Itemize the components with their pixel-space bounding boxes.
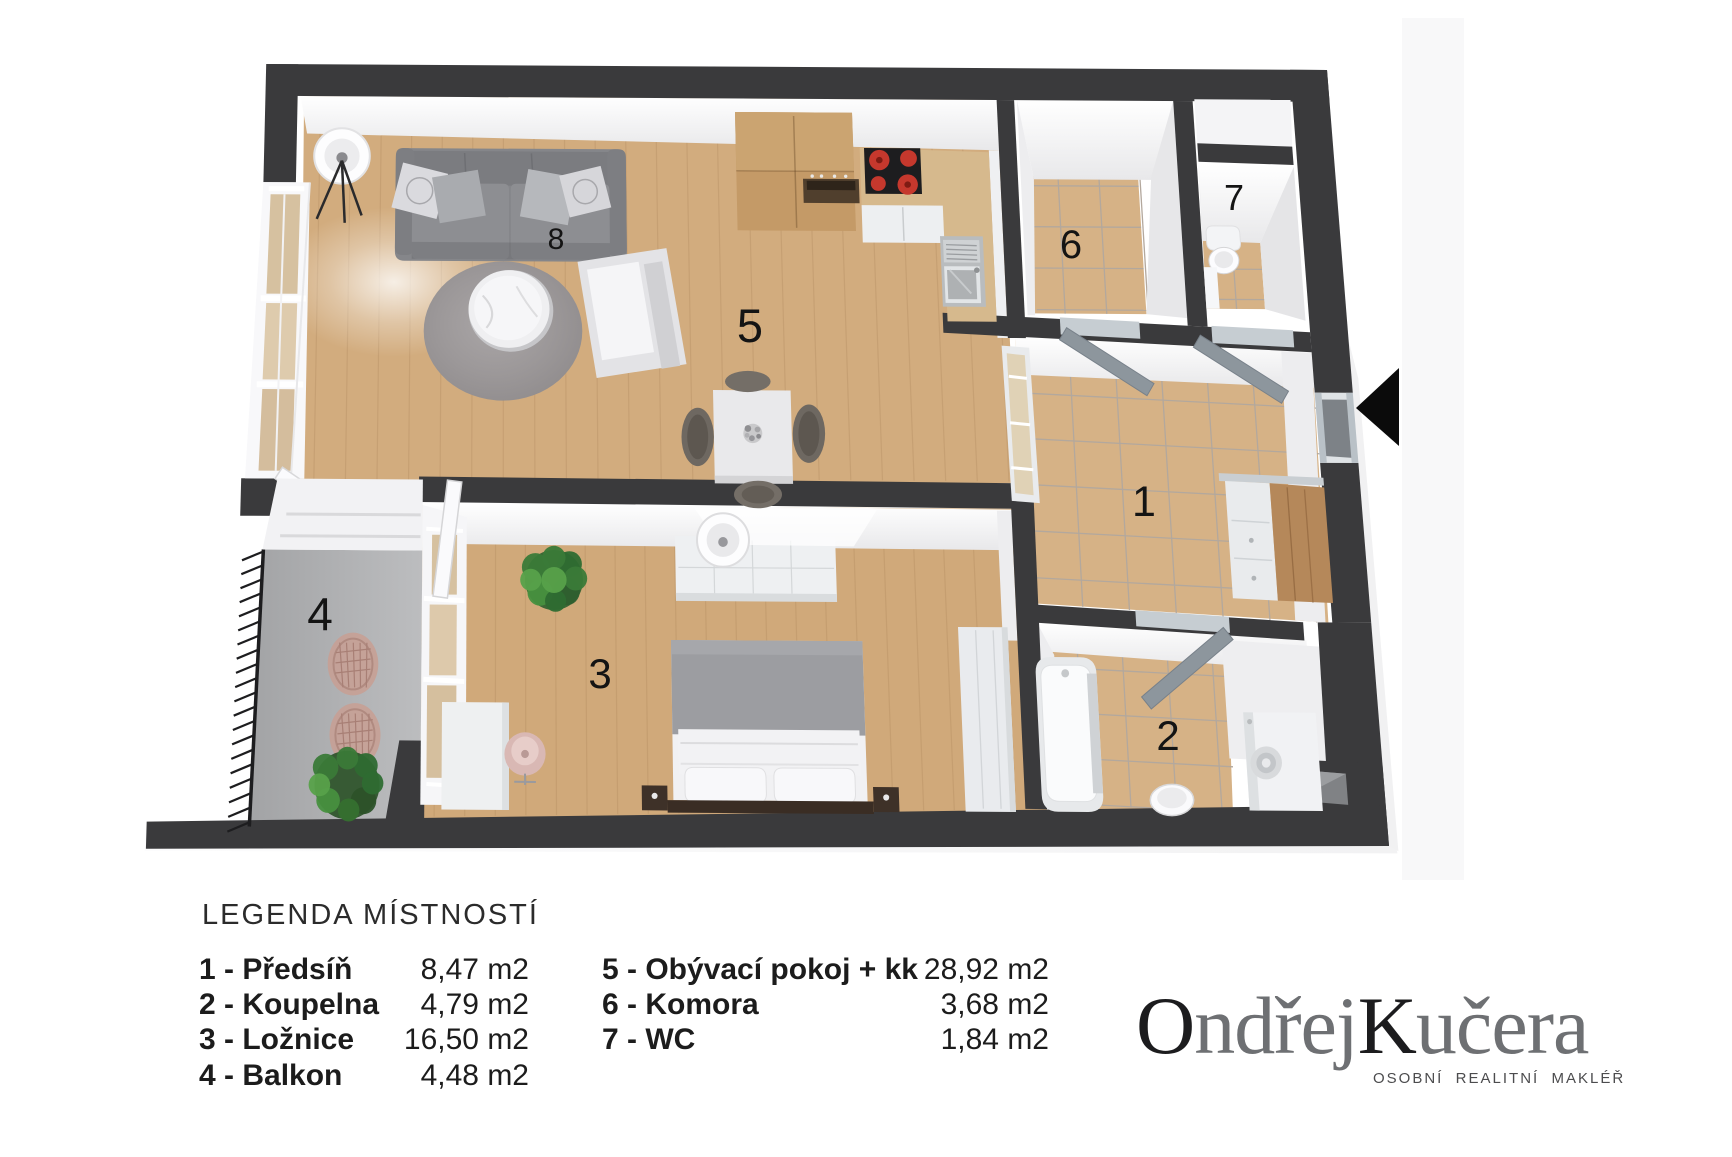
svg-text:8: 8 — [548, 223, 565, 256]
svg-text:1: 1 — [1132, 478, 1156, 526]
svg-text:3: 3 — [588, 650, 611, 697]
svg-text:2: 2 — [1156, 712, 1179, 759]
svg-text:4: 4 — [307, 588, 333, 640]
svg-text:7: 7 — [1224, 177, 1244, 218]
svg-text:5: 5 — [737, 299, 763, 352]
svg-text:6: 6 — [1060, 223, 1082, 267]
